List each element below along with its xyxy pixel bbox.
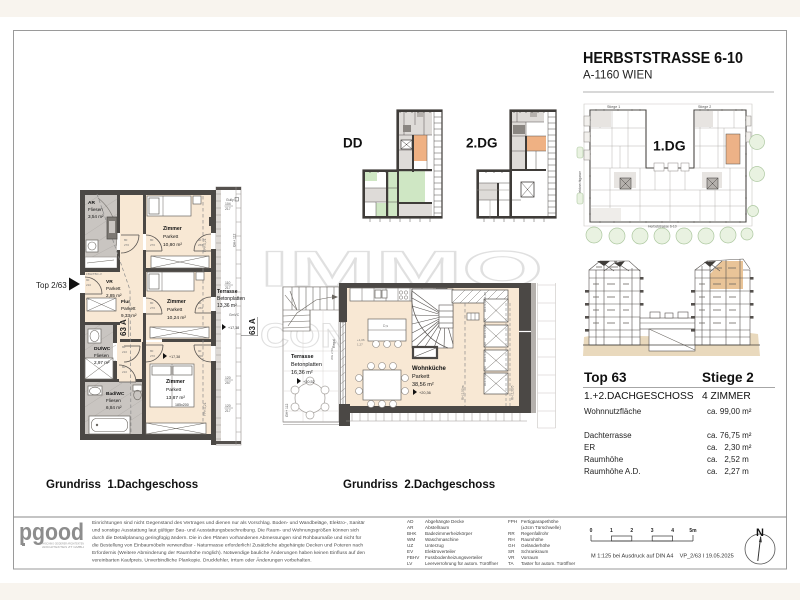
svg-text:3: 3 — [651, 528, 654, 534]
svg-text:210: 210 — [122, 350, 127, 354]
svg-text:ca. 2,52 m: ca. 2,52 m — [707, 455, 749, 464]
svg-text:Parkett: Parkett — [121, 306, 136, 311]
svg-text:VR: VR — [106, 279, 113, 285]
svg-text:EV: EV — [407, 549, 414, 554]
svg-text:Stiege 1: Stiege 1 — [607, 105, 620, 109]
svg-text:217: 217 — [225, 286, 231, 290]
svg-text:270: 270 — [150, 354, 155, 358]
svg-text:90: 90 — [198, 238, 202, 242]
svg-text:ca. 2,30 m²: ca. 2,30 m² — [707, 443, 752, 452]
svg-text:RH 2,50m: RH 2,50m — [461, 385, 465, 400]
svg-text:Parkett: Parkett — [412, 374, 430, 380]
svg-text:durch die Detailplanung gering: durch die Detailplanung geringfügig ände… — [92, 535, 362, 541]
svg-text:Wohnküche: Wohnküche — [412, 366, 447, 372]
svg-text:Taster für autom. Türöffner: Taster für autom. Türöffner — [521, 561, 576, 566]
svg-text:Parkett: Parkett — [166, 387, 182, 393]
svg-text:+20,36: +20,36 — [419, 391, 431, 395]
svg-text:2,85 m²: 2,85 m² — [106, 293, 122, 298]
svg-text:Regal: Regal — [332, 339, 336, 348]
svg-text:Top 63: Top 63 — [584, 370, 627, 385]
svg-text:Raumhöhe: Raumhöhe — [521, 537, 544, 542]
svg-text:90: 90 — [198, 301, 202, 305]
svg-text:Terrasse: Terrasse — [291, 354, 314, 360]
svg-text:+20,52: +20,52 — [303, 380, 315, 384]
svg-text:Abstellraum: Abstellraum — [425, 525, 449, 530]
svg-text:AR: AR — [407, 525, 414, 530]
svg-text:RR: RR — [508, 531, 515, 536]
svg-text:Bad/WC: Bad/WC — [106, 391, 125, 397]
svg-text:GH+ 112: GH+ 112 — [233, 233, 237, 247]
svg-text:HERBSTSTRASSE 6-10: HERBSTSTRASSE 6-10 — [583, 50, 743, 67]
svg-text:Raumhöhe A.D.: Raumhöhe A.D. — [584, 467, 640, 476]
svg-text:Betonplatten: Betonplatten — [291, 362, 322, 368]
svg-text:+1,06: +1,06 — [357, 338, 365, 342]
svg-text:Parkett: Parkett — [106, 286, 121, 291]
svg-text:Leerverrohrung für autom. Türö: Leerverrohrung für autom. Türöffner — [425, 561, 499, 566]
svg-text:Unterzug: Unterzug — [425, 543, 444, 548]
svg-text:185x200: 185x200 — [175, 403, 189, 407]
svg-text:266: 266 — [198, 306, 203, 310]
svg-text:80: 80 — [150, 238, 154, 242]
svg-text:3,54 m²: 3,54 m² — [88, 214, 104, 219]
svg-text:N: N — [756, 527, 764, 539]
svg-text:Zimmer: Zimmer — [167, 299, 186, 305]
svg-text:120: 120 — [225, 376, 231, 380]
svg-text:13,87 m²: 13,87 m² — [166, 395, 185, 401]
svg-text:90: 90 — [86, 278, 90, 282]
svg-text:AR: AR — [88, 200, 95, 206]
svg-text:FBH/TBC-V: FBH/TBC-V — [86, 272, 102, 276]
svg-text:Dachterrasse: Dachterrasse — [584, 431, 632, 440]
svg-text:SR: SR — [508, 549, 515, 554]
svg-text:die Bestellung von Einbaumöbel: die Bestellung von Einbaumöbeln verwendb… — [92, 543, 363, 549]
svg-text:63 A: 63 A — [119, 319, 128, 336]
svg-text:10,24 m²: 10,24 m² — [167, 315, 186, 321]
svg-text:270: 270 — [124, 243, 129, 247]
svg-text:Stiege 2: Stiege 2 — [698, 105, 711, 109]
svg-text:AD: AD — [407, 519, 414, 524]
svg-text:DU/WC: DU/WC — [94, 346, 111, 352]
svg-text:217: 217 — [225, 409, 231, 413]
svg-text:Parkett: Parkett — [163, 234, 179, 240]
svg-text:+17,38: +17,38 — [169, 355, 180, 359]
svg-text:vereinbarten Kaufpreis. Unverb: vereinbarten Kaufpreis. Unverbindliche P… — [92, 557, 312, 564]
svg-text:16,36 m²: 16,36 m² — [291, 370, 313, 376]
svg-text:38,56 m²: 38,56 m² — [412, 382, 434, 388]
svg-text:80: 80 — [122, 345, 126, 349]
svg-text:DFF 0,94x1,60: DFF 0,94x1,60 — [483, 292, 487, 312]
svg-text:RH 2,30/5: RH 2,30/5 — [511, 385, 515, 400]
svg-text:TA: TA — [508, 561, 514, 566]
svg-text:Regenfallrohr: Regenfallrohr — [521, 531, 549, 536]
svg-text:104: 104 — [225, 202, 231, 206]
svg-text:1: 1 — [610, 528, 613, 534]
svg-text:9,33 m²: 9,33 m² — [121, 313, 137, 318]
svg-text:DFF 0,94x1,60: DFF 0,94x1,60 — [483, 366, 487, 386]
svg-text:ca. 99,00 m²: ca. 99,00 m² — [707, 407, 752, 416]
svg-text:RH: RH — [508, 537, 515, 542]
svg-text:Stiege 2: Stiege 2 — [702, 370, 754, 385]
svg-text:ca. 2,27 m: ca. 2,27 m — [707, 467, 749, 476]
svg-text:Schrankraum: Schrankraum — [521, 549, 548, 554]
svg-text:Zimmer: Zimmer — [163, 226, 182, 232]
svg-text:10,80 m²: 10,80 m² — [163, 242, 182, 248]
svg-text:1.+2.DACHGESCHOSS: 1.+2.DACHGESCHOSS — [584, 391, 694, 402]
svg-text:FPH 0,21: FPH 0,21 — [203, 238, 207, 252]
svg-text:Erfordernis (Weitere Abminderu: Erfordernis (Weitere Abminderung der Rau… — [92, 549, 365, 556]
svg-text:210: 210 — [86, 283, 91, 287]
svg-text:63 A: 63 A — [248, 318, 257, 335]
svg-text:UZ: UZ — [407, 543, 413, 548]
svg-text:80: 80 — [124, 238, 128, 242]
svg-text:Flur: Flur — [121, 299, 130, 305]
svg-text:(±3cm Türschwelle): (±3cm Türschwelle) — [521, 525, 561, 530]
svg-text:Fliesen: Fliesen — [88, 207, 103, 212]
svg-text:Wohnnutzfläche: Wohnnutzfläche — [584, 407, 642, 416]
svg-text:120: 120 — [225, 404, 231, 408]
svg-text:Einrichtungen sind nicht Gegen: Einrichtungen sind nicht Gegenstand des … — [92, 520, 365, 526]
svg-text:VR: VR — [508, 555, 515, 560]
svg-text:Waschmaschine: Waschmaschine — [425, 537, 459, 542]
svg-text:2: 2 — [630, 528, 633, 534]
svg-text:90: 90 — [198, 349, 202, 353]
svg-text:80: 80 — [122, 365, 126, 369]
svg-text:Fliesen: Fliesen — [94, 353, 109, 358]
svg-text:DFF 0,94x1,60: DFF 0,94x1,60 — [483, 342, 487, 362]
svg-text:Zimmer: Zimmer — [166, 379, 185, 385]
svg-text:Fussbodenheizungsverteiler: Fussbodenheizungsverteiler — [425, 555, 483, 560]
svg-text:80: 80 — [150, 349, 154, 353]
svg-text:FPH 0,21: FPH 0,21 — [203, 402, 207, 416]
svg-text:Parkett: Parkett — [167, 307, 183, 313]
svg-text:Raumhöhe: Raumhöhe — [584, 455, 624, 464]
svg-text:4 ZIMMER: 4 ZIMMER — [702, 391, 751, 402]
svg-text:und sonstige Ausstattung laut: und sonstige Ausstattung laut gültiger B… — [92, 528, 359, 534]
svg-text:Liebknechtgasse: Liebknechtgasse — [578, 171, 582, 195]
svg-text:Geländerhöhe: Geländerhöhe — [521, 543, 551, 548]
svg-text:+17,38: +17,38 — [228, 326, 239, 330]
svg-text:1.DG: 1.DG — [653, 138, 686, 154]
svg-text:5m: 5m — [689, 528, 697, 534]
svg-text:Vorraum: Vorraum — [521, 555, 539, 560]
svg-text:WM: WM — [407, 537, 415, 542]
svg-text:200: 200 — [198, 354, 203, 358]
svg-text:FPH: FPH — [508, 519, 517, 524]
svg-text:LV: LV — [86, 297, 89, 301]
svg-text:13,36 m²: 13,36 m² — [217, 303, 237, 309]
svg-text:M 1:125 bei Ausdruck auf DIN A: M 1:125 bei Ausdruck auf DIN A4 VP_2/63 … — [591, 554, 734, 560]
svg-text:110: 110 — [225, 281, 231, 285]
svg-text:GmVC: GmVC — [229, 313, 240, 317]
svg-text:80: 80 — [150, 301, 154, 305]
svg-text:Fertigparapethöhe: Fertigparapethöhe — [521, 519, 559, 524]
svg-text:Elektroverteiler: Elektroverteiler — [425, 549, 456, 554]
svg-text:1,27: 1,27 — [357, 343, 363, 347]
svg-text:Abgehängte Decke: Abgehängte Decke — [425, 519, 465, 524]
svg-text:Grundriss 2.Dachgeschoss: Grundriss 2.Dachgeschoss — [343, 479, 495, 491]
svg-text:D,s: D,s — [383, 324, 388, 328]
svg-text:6,84 m²: 6,84 m² — [106, 405, 122, 410]
svg-text:DFF 0,94x1,60: DFF 0,94x1,60 — [483, 318, 487, 338]
svg-text:BHK: BHK — [407, 531, 417, 536]
svg-text:ARCHITEKTEN ZT GMBH: ARCHITEKTEN ZT GMBH — [42, 545, 84, 549]
svg-text:WG 2,59: WG 2,59 — [330, 348, 334, 360]
svg-text:4: 4 — [671, 528, 674, 534]
svg-text:270: 270 — [150, 306, 155, 310]
svg-text:Fliesen: Fliesen — [106, 398, 121, 403]
svg-text:DD: DD — [343, 136, 363, 151]
svg-text:ca. 76,75 m²: ca. 76,75 m² — [707, 431, 752, 440]
svg-text:210: 210 — [122, 370, 127, 374]
svg-text:Badezimmerheizkörper: Badezimmerheizkörper — [425, 531, 473, 536]
svg-text:A-1160 WIEN: A-1160 WIEN — [583, 70, 652, 82]
svg-text:GH+ 112: GH+ 112 — [285, 403, 289, 417]
svg-text:Top 2/63: Top 2/63 — [36, 281, 67, 290]
svg-text:2.DG: 2.DG — [466, 136, 498, 151]
svg-text:FBHV: FBHV — [407, 555, 420, 560]
svg-text:257: 257 — [225, 381, 231, 385]
svg-text:217: 217 — [225, 207, 231, 211]
svg-text:270: 270 — [150, 243, 155, 247]
svg-text:Grundriss 1.Dachgeschoss: Grundriss 1.Dachgeschoss — [46, 479, 198, 491]
svg-text:2,97 m²: 2,97 m² — [94, 360, 110, 365]
svg-text:Betonplatten: Betonplatten — [217, 296, 245, 302]
svg-text:GH: GH — [508, 543, 515, 548]
svg-text:0: 0 — [590, 528, 593, 534]
svg-text:ER: ER — [584, 443, 595, 452]
